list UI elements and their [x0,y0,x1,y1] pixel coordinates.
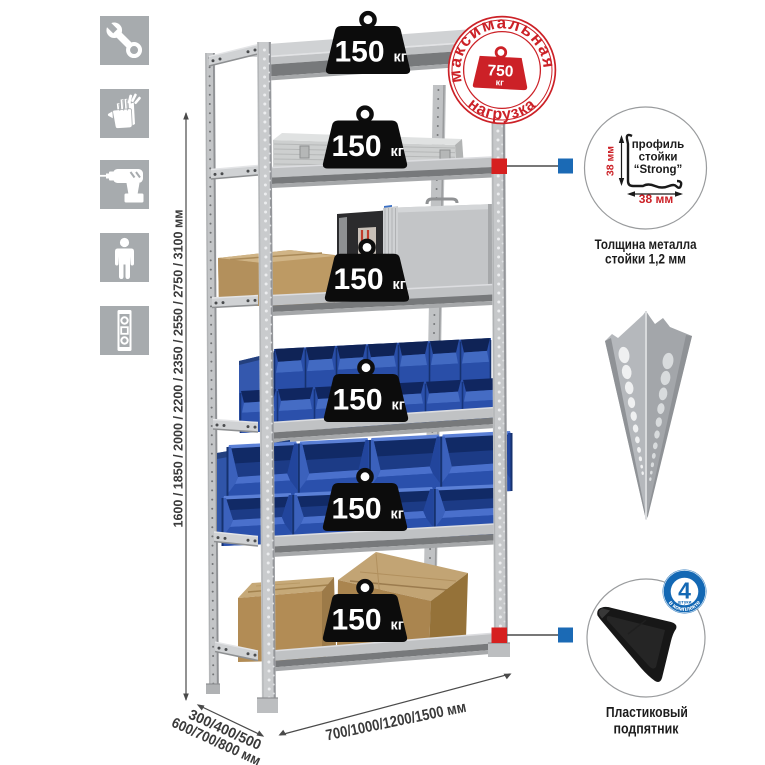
svg-text:профиль: профиль [632,139,685,151]
svg-text:38 мм: 38 мм [605,146,617,176]
svg-text:кг: кг [391,144,404,160]
svg-text:38 мм: 38 мм [639,192,674,206]
svg-text:150: 150 [332,384,382,417]
svg-text:150: 150 [331,493,381,526]
svg-text:150: 150 [331,130,381,163]
svg-text:подпятник: подпятник [614,722,680,738]
svg-text:150: 150 [331,604,381,637]
svg-text:кг: кг [391,618,404,634]
svg-text:1600 / 1850 / 2000 / 2200 / 23: 1600 / 1850 / 2000 / 2200 / 2350 / 2550 … [171,210,186,528]
svg-text:штуки: штуки [678,600,692,605]
svg-text:“Strong”: “Strong” [634,164,683,176]
svg-text:кг: кг [392,398,405,414]
svg-text:150: 150 [334,36,384,69]
svg-text:стойки: стойки [639,152,678,164]
svg-text:кг: кг [495,77,504,87]
svg-text:150: 150 [333,263,383,296]
svg-text:кг: кг [391,507,404,523]
svg-text:стойки 1,2 мм: стойки 1,2 мм [605,251,686,267]
svg-text:кг: кг [393,277,406,293]
svg-text:кг: кг [394,50,407,66]
svg-text:Пластиковый: Пластиковый [606,705,688,721]
